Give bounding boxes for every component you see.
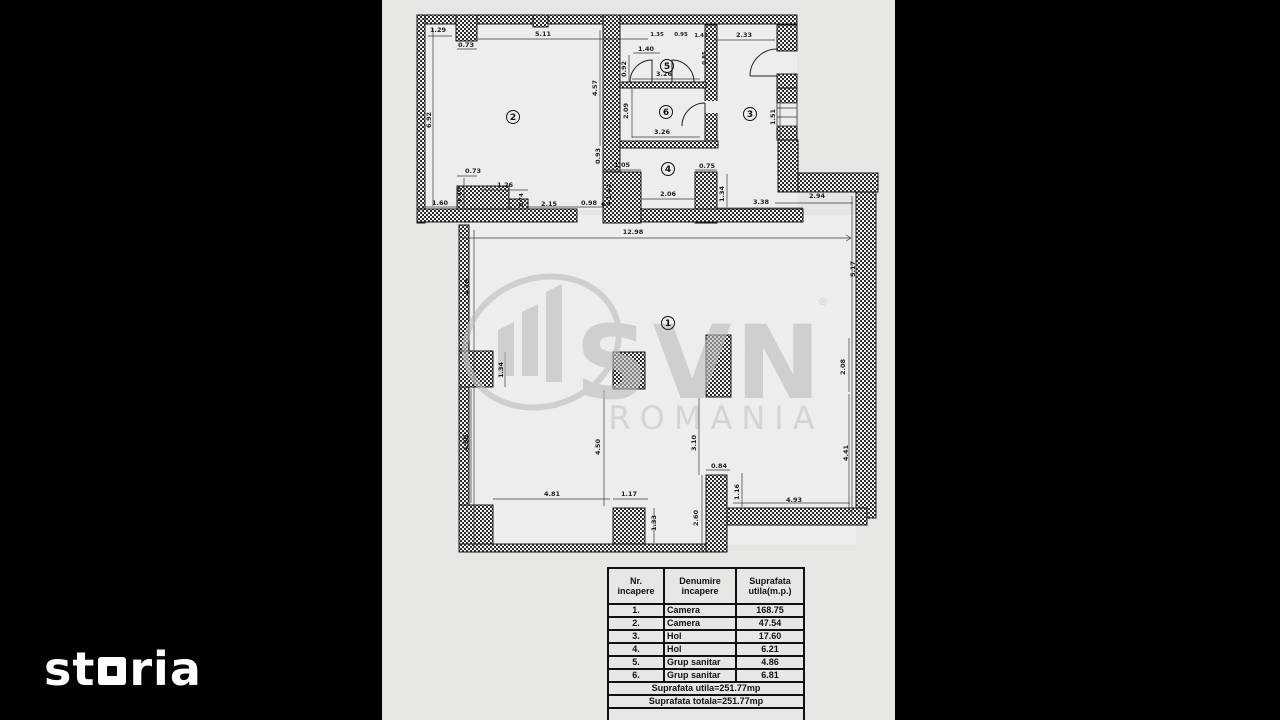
dimension-label: 4.50 bbox=[462, 435, 470, 452]
storia-o-square-icon bbox=[98, 657, 126, 685]
header-nr: Nr. incapere bbox=[608, 568, 664, 604]
table-cell: 2. bbox=[608, 617, 664, 630]
header-name: Denumire incapere bbox=[664, 568, 736, 604]
dimension-label: 1.29 bbox=[430, 26, 447, 34]
header-area: Suprafata utila(m.p.) bbox=[736, 568, 804, 604]
dimension-label: 3.38 bbox=[753, 198, 770, 206]
dimension-label: 4.41 bbox=[842, 445, 850, 462]
room-number-label: 2 bbox=[510, 113, 516, 123]
table-cell: 168.75 bbox=[736, 604, 804, 617]
table-cell: Hol bbox=[664, 630, 736, 643]
table-cell: 4.86 bbox=[736, 656, 804, 669]
dimension-label: 1.42 bbox=[605, 184, 613, 200]
table-row: 6.Grup sanitar6.81 bbox=[608, 669, 804, 682]
dimension-label: 0.4 bbox=[601, 202, 611, 208]
dimension-label: 2.33 bbox=[736, 31, 752, 39]
dimension-label: 4.93 bbox=[786, 496, 802, 504]
dimension-label: 2.60 bbox=[692, 510, 700, 527]
dimension-label: 1.34 bbox=[718, 186, 726, 203]
dimension-label: 1.45 bbox=[694, 33, 708, 39]
dimension-label: 0.84 bbox=[711, 462, 728, 470]
dimension-label: 4.78 bbox=[463, 279, 471, 296]
dimension-label: 6.92 bbox=[425, 112, 433, 128]
table-cell: 6.81 bbox=[736, 669, 804, 682]
table-cell: 3. bbox=[608, 630, 664, 643]
table-cell: Camera bbox=[664, 617, 736, 630]
dimension-label: 0.75 bbox=[699, 162, 716, 170]
door-gap-room6 bbox=[704, 101, 718, 113]
table-row: 3.Hol17.60 bbox=[608, 630, 804, 643]
dimension-label: 2.06 bbox=[660, 190, 677, 198]
dimension-label: 3.10 bbox=[690, 435, 698, 452]
table-footer: Suprafata utila=251.77mp Suprafata total… bbox=[608, 682, 804, 720]
room-table: Nr. incapere Denumire incapere Suprafata… bbox=[607, 567, 805, 720]
storia-text-suffix: ria bbox=[129, 642, 202, 696]
dimension-label: 0.74 bbox=[519, 193, 525, 207]
dimension-label: 1.17 bbox=[621, 490, 637, 498]
dimension-label: 5.17 bbox=[849, 261, 857, 277]
dimension-label: 1.26 bbox=[497, 181, 514, 189]
dimension-label: 4.81 bbox=[544, 490, 561, 498]
dimension-label: 0.92 bbox=[620, 61, 628, 77]
dimension-label: 0.85 bbox=[702, 51, 708, 65]
dimension-label: 0.93 bbox=[594, 148, 602, 164]
table-cell: 6. bbox=[608, 669, 664, 682]
table-cell: 5. bbox=[608, 656, 664, 669]
total-utila: Suprafata utila=251.77mp bbox=[608, 682, 804, 695]
dimension-label: 2.94 bbox=[809, 192, 826, 200]
dimension-label: 1.34 bbox=[497, 362, 505, 379]
room-number-label: 1 bbox=[665, 319, 671, 329]
dimension-label: 0.73 bbox=[458, 41, 474, 49]
dimension-label: 1.40 bbox=[638, 45, 655, 53]
clipped-row bbox=[608, 708, 804, 720]
table-cell: Hol bbox=[664, 643, 736, 656]
dimension-label: 2.09 bbox=[622, 103, 630, 120]
dimension-label: 12.98 bbox=[623, 228, 644, 236]
dimension-label: 1.19 bbox=[455, 187, 463, 204]
dimension-label: 0.73 bbox=[465, 167, 481, 175]
room-number-label: 3 bbox=[747, 110, 753, 120]
watermark-registered-icon: ® bbox=[818, 297, 828, 308]
dimension-label: 1.16 bbox=[733, 484, 741, 501]
table-row: 4.Hol6.21 bbox=[608, 643, 804, 656]
floorplan-sheet: SVN ® ROMANIA 1.295.110.736.924.571.350.… bbox=[382, 0, 895, 720]
room-number-label: 5 bbox=[664, 62, 670, 72]
table-row: 2.Camera47.54 bbox=[608, 617, 804, 630]
dimension-label: 4.50 bbox=[594, 439, 602, 456]
table-cell: Grup sanitar bbox=[664, 669, 736, 682]
dimension-label: 1.05 bbox=[614, 161, 631, 169]
room-number-label: 4 bbox=[665, 165, 671, 175]
table-header: Nr. incapere Denumire incapere Suprafata… bbox=[608, 568, 804, 604]
dimension-label: 1.33 bbox=[650, 515, 658, 531]
table-cell: 4. bbox=[608, 643, 664, 656]
dimension-label: 5.11 bbox=[535, 30, 552, 38]
dimension-label: 1.35 bbox=[650, 32, 664, 38]
dimension-label: 2.15 bbox=[541, 200, 558, 208]
dimension-label: 0.98 bbox=[581, 199, 598, 207]
table-cell: 17.60 bbox=[736, 630, 804, 643]
table-row: 1.Camera168.75 bbox=[608, 604, 804, 617]
table-cell: 1. bbox=[608, 604, 664, 617]
total-totala: Suprafata totala=251.77mp bbox=[608, 695, 804, 708]
table-row: 5.Grup sanitar4.86 bbox=[608, 656, 804, 669]
dimension-label: 1.60 bbox=[432, 199, 449, 207]
storia-text-prefix: st bbox=[44, 642, 95, 696]
dimension-label: 2.08 bbox=[839, 359, 847, 376]
dimension-label: 1.51 bbox=[769, 109, 777, 126]
table-cell: Camera bbox=[664, 604, 736, 617]
dimension-label: 4.57 bbox=[591, 80, 599, 96]
room-number-label: 6 bbox=[663, 108, 669, 118]
dimension-label: 0.95 bbox=[674, 32, 688, 38]
table-cell: Grup sanitar bbox=[664, 656, 736, 669]
table-cell: 47.54 bbox=[736, 617, 804, 630]
table-cell: 6.21 bbox=[736, 643, 804, 656]
watermark-region: ROMANIA bbox=[608, 399, 823, 437]
screenshot-root: { "branding": { "storia_prefix": "st", "… bbox=[0, 0, 1280, 720]
room-table-body: 1.Camera168.752.Camera47.543.Hol17.604.H… bbox=[608, 604, 804, 682]
dimension-label: 3.26 bbox=[654, 128, 671, 136]
storia-logo: stria bbox=[44, 642, 202, 696]
